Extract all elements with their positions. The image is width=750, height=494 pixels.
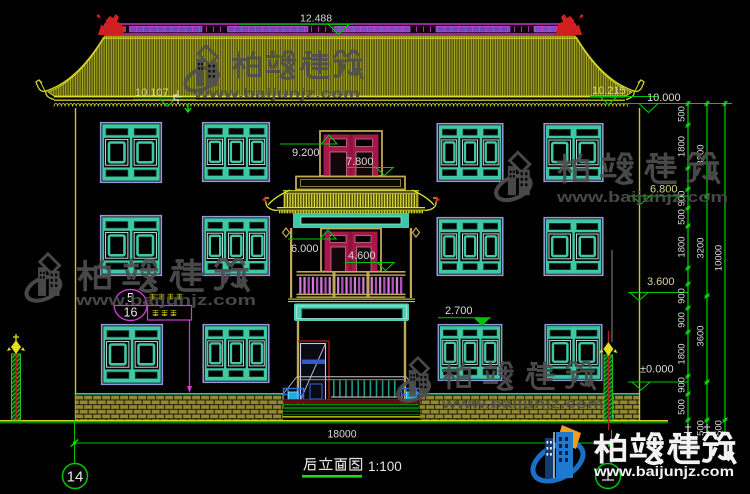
svg-text:±0.000: ±0.000 <box>640 364 674 376</box>
svg-text:18000: 18000 <box>328 429 357 441</box>
svg-text:2.700: 2.700 <box>445 305 473 317</box>
svg-text:500: 500 <box>677 209 688 225</box>
svg-text:10.107: 10.107 <box>135 87 169 99</box>
svg-text:900: 900 <box>677 288 688 304</box>
svg-text:4.600: 4.600 <box>348 250 376 262</box>
svg-text:9.200: 9.200 <box>292 147 320 159</box>
svg-text:7.800: 7.800 <box>346 156 374 168</box>
svg-text:1800: 1800 <box>677 236 688 257</box>
svg-text:500: 500 <box>677 399 688 415</box>
svg-text:10.215: 10.215 <box>592 85 626 97</box>
svg-text:www.baijunjz.com: www.baijunjz.com <box>193 85 360 101</box>
svg-text:www.baijunjz.com: www.baijunjz.com <box>593 464 734 479</box>
svg-text:14: 14 <box>67 469 84 486</box>
svg-text:www.baijunjz.com: www.baijunjz.com <box>75 293 256 309</box>
svg-text:www.baijunjz.com: www.baijunjz.com <box>441 396 604 411</box>
svg-text:500: 500 <box>677 106 688 122</box>
svg-text:500: 500 <box>696 420 707 436</box>
svg-text:3200: 3200 <box>696 237 707 258</box>
svg-text:10.000: 10.000 <box>647 92 681 104</box>
svg-text:1800: 1800 <box>677 343 688 364</box>
svg-text:6.000: 6.000 <box>291 243 319 255</box>
svg-text:10000: 10000 <box>714 245 725 271</box>
svg-text:900: 900 <box>677 377 688 393</box>
svg-text:1800: 1800 <box>677 136 688 157</box>
svg-text:3.600: 3.600 <box>647 276 675 288</box>
svg-text:900: 900 <box>677 312 688 328</box>
svg-text:3600: 3600 <box>696 325 707 346</box>
svg-text:www.baijunjz.com: www.baijunjz.com <box>556 190 728 206</box>
svg-text:12.488: 12.488 <box>300 13 332 25</box>
svg-text:1:100: 1:100 <box>368 459 402 474</box>
